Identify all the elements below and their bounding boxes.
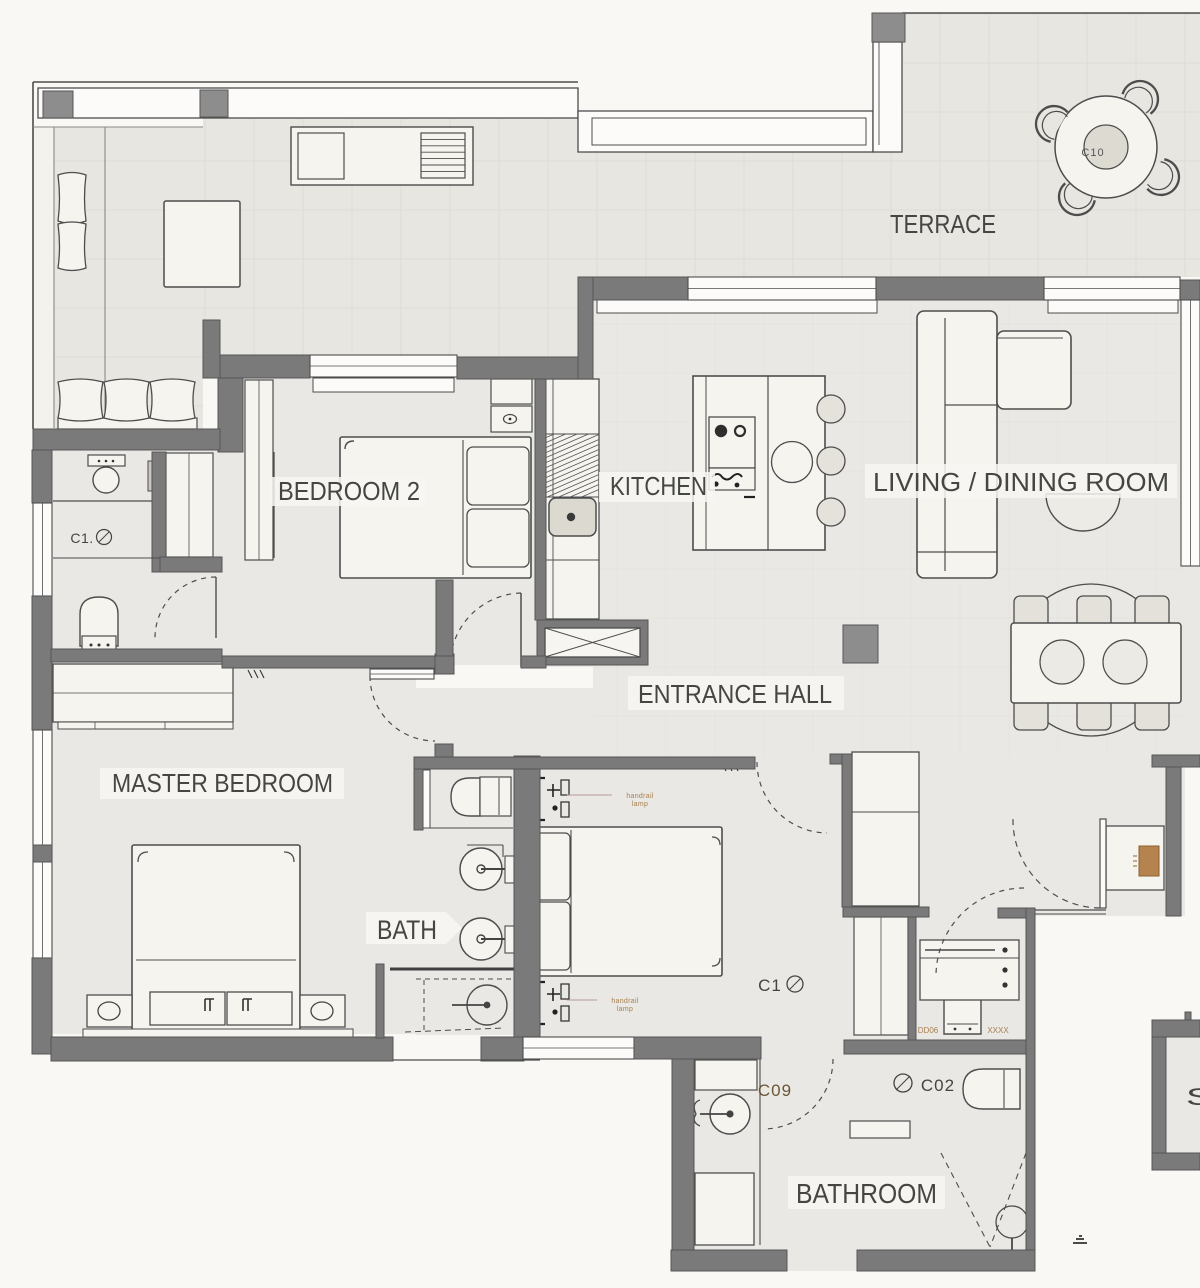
svg-text:lamp: lamp	[632, 801, 648, 808]
svg-text:S: S	[1186, 1084, 1200, 1111]
svg-text:MASTER BEDROOM: MASTER BEDROOM	[112, 768, 333, 798]
svg-text:C1.: C1.	[70, 530, 93, 546]
svg-text:BATH: BATH	[377, 915, 437, 945]
svg-text:C02: C02	[921, 1076, 955, 1095]
svg-text:XXXX: XXXX	[987, 1026, 1009, 1035]
svg-text:DD06: DD06	[918, 1026, 939, 1035]
svg-text:KITCHEN: KITCHEN	[610, 471, 707, 501]
svg-text:lamp: lamp	[617, 1006, 633, 1013]
svg-text:TERRACE: TERRACE	[890, 209, 996, 239]
svg-text:C09: C09	[758, 1081, 792, 1100]
svg-text:C10: C10	[1081, 147, 1104, 159]
svg-text:C1: C1	[758, 976, 782, 995]
svg-text:BATHROOM: BATHROOM	[796, 1178, 937, 1209]
svg-text:BEDROOM 2: BEDROOM 2	[278, 476, 420, 506]
svg-text:handrail: handrail	[611, 998, 638, 1005]
svg-text:ENTRANCE HALL: ENTRANCE HALL	[638, 679, 832, 709]
svg-text:handrail: handrail	[626, 793, 653, 800]
svg-text:LIVING / DINING ROOM: LIVING / DINING ROOM	[873, 467, 1169, 497]
